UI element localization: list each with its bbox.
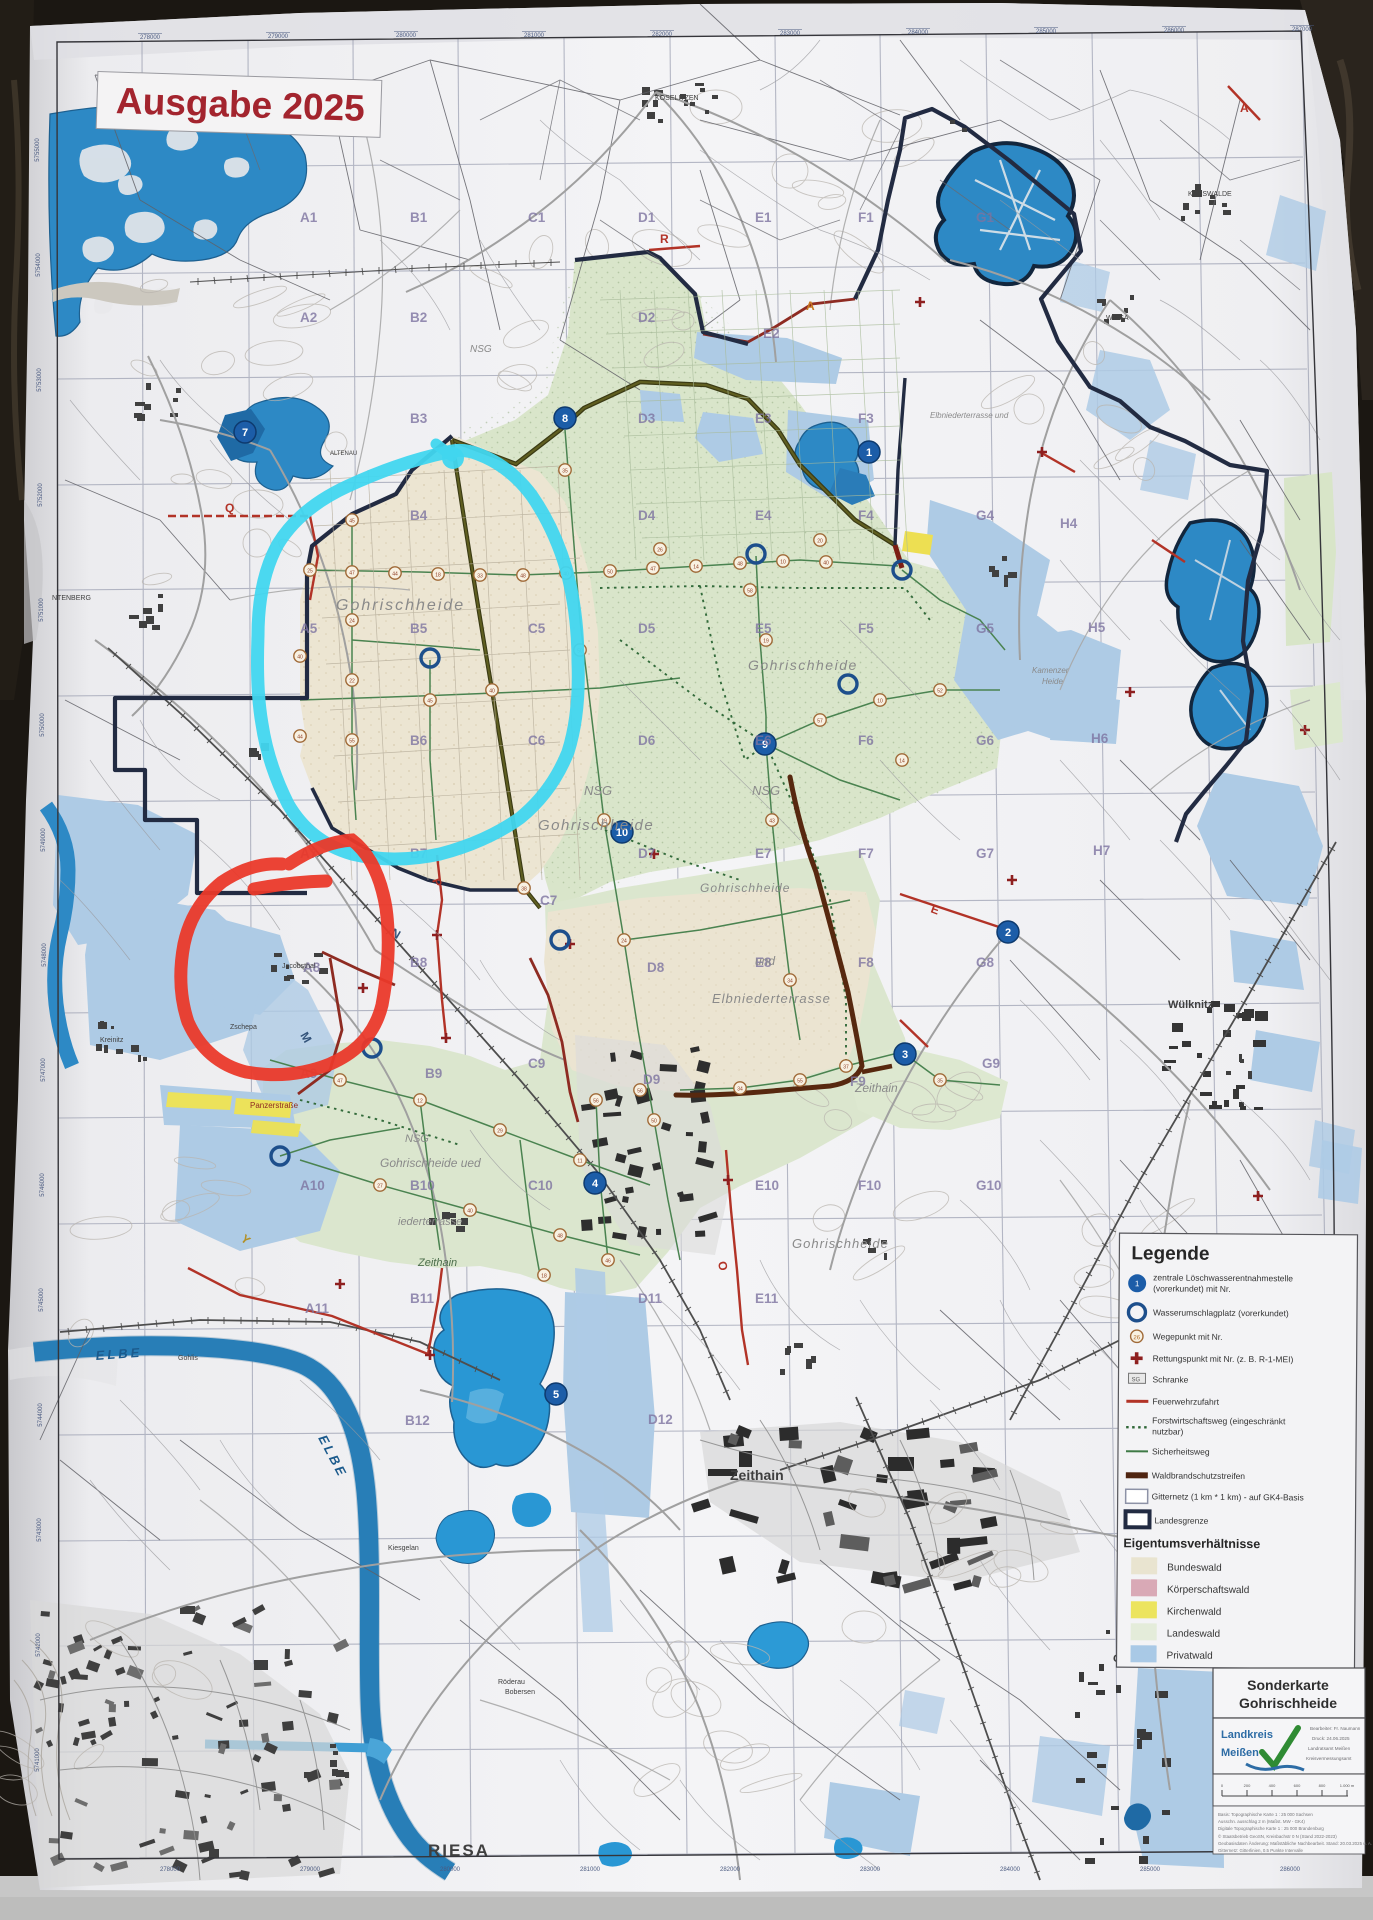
- svg-text:B2: B2: [410, 310, 427, 325]
- svg-text:58: 58: [747, 589, 753, 595]
- svg-text:1.000 m: 1.000 m: [1340, 1783, 1355, 1788]
- svg-text:B10: B10: [410, 1178, 435, 1193]
- svg-text:Kamenzer: Kamenzer: [1032, 666, 1069, 675]
- svg-text:E2: E2: [763, 326, 780, 341]
- svg-text:Zeithain: Zeithain: [417, 1257, 457, 1269]
- svg-text:47: 47: [349, 571, 355, 577]
- svg-text:14: 14: [899, 759, 905, 765]
- svg-text:D3: D3: [638, 411, 656, 426]
- svg-text:iederterrasse: iederterrasse: [398, 1216, 462, 1228]
- svg-text:281000: 281000: [524, 33, 545, 39]
- svg-text:5741000: 5741000: [35, 1748, 41, 1772]
- svg-text:281000: 281000: [580, 1867, 601, 1873]
- svg-text:Panzerstraße: Panzerstraße: [250, 1101, 299, 1110]
- svg-text:Bobersen: Bobersen: [505, 1689, 535, 1696]
- svg-text:8: 8: [562, 413, 568, 425]
- svg-text:56: 56: [593, 1099, 599, 1105]
- svg-text:NSG: NSG: [405, 1133, 429, 1145]
- svg-text:B4: B4: [410, 508, 428, 523]
- svg-text:G4: G4: [976, 508, 995, 523]
- svg-text:E1: E1: [755, 210, 772, 225]
- svg-text:285000: 285000: [1036, 29, 1057, 35]
- svg-text:NSG: NSG: [470, 344, 492, 355]
- svg-text:G10: G10: [976, 1178, 1002, 1193]
- svg-text:F4: F4: [858, 508, 874, 523]
- svg-text:278000: 278000: [140, 35, 161, 41]
- svg-text:50: 50: [607, 570, 613, 576]
- svg-text:5751000: 5751000: [39, 598, 45, 622]
- svg-text:G1: G1: [976, 210, 995, 225]
- svg-text:43: 43: [769, 819, 775, 825]
- svg-text:Gohrischheide: Gohrischheide: [1239, 1695, 1337, 1711]
- svg-text:Gohrischheide: Gohrischheide: [700, 881, 790, 895]
- svg-text:B5: B5: [410, 621, 428, 636]
- svg-text:4: 4: [592, 1178, 599, 1190]
- svg-text:Feuerwehrzufahrt: Feuerwehrzufahrt: [1152, 1396, 1219, 1406]
- svg-text:26: 26: [1133, 1335, 1140, 1341]
- svg-text:Landkreis: Landkreis: [1221, 1729, 1273, 1741]
- svg-text:12: 12: [417, 1099, 423, 1105]
- svg-text:283000: 283000: [860, 1867, 881, 1873]
- svg-text:G5: G5: [976, 621, 995, 636]
- svg-text:Gitternetz (1 km * 1 km) - auf: Gitternetz (1 km * 1 km) - auf GK4-Basis: [1152, 1491, 1304, 1502]
- svg-text:D8: D8: [647, 960, 665, 975]
- svg-text:Wasserumschlagplatz (vorerkund: Wasserumschlagplatz (vorerkundet): [1153, 1307, 1289, 1318]
- svg-text:Gohrischheide ued: Gohrischheide ued: [380, 1156, 481, 1170]
- svg-text:Ausschn. ausschlag 2 m (Maßst.: Ausschn. ausschlag 2 m (Maßst. MW - GK4): [1218, 1819, 1305, 1824]
- svg-text:D7: D7: [638, 846, 655, 861]
- svg-text:H7: H7: [1093, 843, 1110, 858]
- svg-text:19: 19: [763, 639, 769, 645]
- svg-text:KOSELITZEN: KOSELITZEN: [655, 95, 699, 102]
- svg-text:E3: E3: [755, 411, 772, 426]
- svg-text:A1: A1: [300, 210, 318, 225]
- svg-text:Bundeswald: Bundeswald: [1167, 1562, 1222, 1573]
- svg-text:10: 10: [780, 560, 786, 566]
- svg-text:Landeswald: Landeswald: [1167, 1628, 1220, 1639]
- svg-text:G6: G6: [976, 733, 995, 748]
- svg-text:Jacobsthal: Jacobsthal: [282, 963, 316, 970]
- svg-text:NSG: NSG: [584, 783, 612, 798]
- svg-text:D1: D1: [638, 210, 656, 225]
- svg-text:A: A: [1240, 101, 1249, 115]
- svg-text:18: 18: [435, 573, 441, 579]
- svg-text:B8: B8: [410, 955, 428, 970]
- svg-text:Forstwirtschaftsweg (eingeschr: Forstwirtschaftsweg (eingeschränkt: [1152, 1415, 1286, 1426]
- svg-text:H6: H6: [1091, 731, 1109, 746]
- svg-text:H4: H4: [1060, 516, 1078, 531]
- svg-text:1: 1: [866, 447, 872, 459]
- svg-text:5747000: 5747000: [41, 1058, 47, 1082]
- svg-text:38: 38: [521, 887, 527, 893]
- svg-text:34: 34: [737, 1087, 743, 1093]
- svg-text:C5: C5: [528, 621, 546, 636]
- svg-text:200: 200: [1244, 1783, 1251, 1788]
- svg-text:35: 35: [562, 469, 568, 475]
- svg-text:5749000: 5749000: [41, 828, 47, 852]
- svg-text:Körperschaftswald: Körperschaftswald: [1167, 1584, 1249, 1596]
- svg-text:26: 26: [657, 548, 663, 554]
- svg-text:Gitternetz: Gitterlinien, 0.5: Gitternetz: Gitterlinien, 0.5 Punkte Int…: [1218, 1848, 1303, 1853]
- svg-text:E4: E4: [755, 508, 772, 523]
- svg-text:B9: B9: [425, 1066, 442, 1081]
- svg-text:Q: Q: [225, 501, 234, 515]
- svg-text:55: 55: [797, 1079, 803, 1085]
- svg-text:40: 40: [467, 1209, 473, 1215]
- svg-text:nutzbar): nutzbar): [1152, 1426, 1183, 1436]
- svg-text:A5: A5: [300, 621, 318, 636]
- svg-text:Röderau: Röderau: [498, 1679, 525, 1686]
- svg-text:D12: D12: [648, 1412, 673, 1427]
- svg-text:400: 400: [1269, 1783, 1276, 1788]
- svg-text:46: 46: [605, 1259, 611, 1265]
- svg-text:5: 5: [553, 1389, 559, 1401]
- svg-text:27: 27: [377, 1184, 383, 1190]
- svg-text:Landesgrenze: Landesgrenze: [1154, 1515, 1208, 1525]
- svg-text:G8: G8: [976, 955, 995, 970]
- svg-text:44: 44: [392, 572, 398, 578]
- svg-text:A2: A2: [300, 310, 317, 325]
- svg-text:11: 11: [577, 1159, 582, 1165]
- svg-text:Bearbeiter: Fr. Naumann: Bearbeiter: Fr. Naumann: [1310, 1726, 1361, 1731]
- svg-text:G9: G9: [982, 1056, 1000, 1071]
- svg-text:1: 1: [1135, 1279, 1140, 1288]
- svg-text:280000: 280000: [440, 1867, 461, 1873]
- svg-text:14: 14: [693, 565, 699, 571]
- svg-text:C6: C6: [528, 733, 546, 748]
- svg-text:F7: F7: [858, 846, 874, 861]
- svg-text:Zschepa: Zschepa: [230, 1024, 257, 1031]
- svg-text:B12: B12: [405, 1413, 430, 1428]
- svg-text:40: 40: [297, 655, 303, 661]
- svg-text:Kiesgelan: Kiesgelan: [388, 1545, 419, 1552]
- svg-text:25: 25: [307, 569, 313, 575]
- svg-text:Legende: Legende: [1131, 1243, 1209, 1265]
- svg-text:Kreisvermessungsamt: Kreisvermessungsamt: [1306, 1756, 1352, 1761]
- svg-text:Zeithain: Zeithain: [854, 1081, 898, 1095]
- svg-text:Rettungspunkt mit Nr. (z. B. R: Rettungspunkt mit Nr. (z. B. R-1-MEI): [1153, 1353, 1294, 1364]
- svg-text:3: 3: [902, 1049, 908, 1061]
- svg-text:B1: B1: [410, 210, 428, 225]
- svg-text:Privatwald: Privatwald: [1167, 1650, 1213, 1661]
- svg-text:286000: 286000: [1164, 28, 1185, 34]
- svg-text:5746000: 5746000: [40, 1173, 46, 1197]
- svg-text:R: R: [660, 232, 669, 246]
- svg-text:Kreinitz: Kreinitz: [100, 1037, 124, 1044]
- svg-text:Kirchenwald: Kirchenwald: [1167, 1606, 1222, 1617]
- svg-text:5750000: 5750000: [40, 713, 46, 737]
- svg-text:SG: SG: [1131, 1377, 1140, 1383]
- svg-text:5748000: 5748000: [42, 943, 48, 967]
- svg-text:E5: E5: [755, 621, 772, 636]
- svg-text:40: 40: [823, 561, 829, 567]
- svg-text:279000: 279000: [268, 34, 289, 40]
- svg-text:40: 40: [489, 689, 495, 695]
- svg-text:282000: 282000: [720, 1867, 741, 1873]
- svg-text:44: 44: [297, 735, 303, 741]
- svg-text:10: 10: [877, 699, 883, 705]
- svg-text:Schranke: Schranke: [1152, 1374, 1188, 1384]
- svg-text:29: 29: [497, 1129, 503, 1135]
- svg-text:Gohlis: Gohlis: [178, 1355, 198, 1362]
- svg-text:F8: F8: [858, 955, 874, 970]
- svg-text:600: 600: [1294, 1783, 1301, 1788]
- svg-text:5752000: 5752000: [38, 483, 44, 507]
- svg-text:D6: D6: [638, 733, 656, 748]
- svg-text:Gohrischheide: Gohrischheide: [538, 817, 654, 834]
- svg-text:© Staatsbetrieb GeoSN, Kreisba: © Staatsbetrieb GeoSN, Kreisbachstr 0 N …: [1218, 1834, 1337, 1839]
- svg-text:5755000: 5755000: [35, 138, 41, 162]
- svg-text:G7: G7: [976, 846, 994, 861]
- svg-text:F10: F10: [858, 1178, 881, 1193]
- svg-text:48: 48: [557, 1234, 563, 1240]
- svg-text:E7: E7: [755, 846, 772, 861]
- svg-text:47: 47: [337, 1079, 343, 1085]
- svg-text:NSG: NSG: [752, 783, 780, 798]
- svg-text:Waldbrandschutzstreifen: Waldbrandschutzstreifen: [1152, 1470, 1246, 1481]
- svg-text:285000: 285000: [1140, 1867, 1161, 1873]
- svg-text:33: 33: [477, 574, 483, 580]
- svg-text:35: 35: [937, 1079, 943, 1085]
- svg-text:Geobasisdaten Änderung: Maßstä: Geobasisdaten Änderung: Maßstäbliche Nac…: [1218, 1841, 1372, 1846]
- svg-text:800: 800: [1319, 1783, 1326, 1788]
- svg-text:5753000: 5753000: [37, 368, 43, 392]
- svg-text:Eigentumsverhältnisse: Eigentumsverhältnisse: [1123, 1536, 1260, 1551]
- svg-text:34: 34: [787, 979, 793, 985]
- svg-text:E6: E6: [755, 733, 772, 748]
- svg-text:NTENBERG: NTENBERG: [52, 595, 91, 602]
- svg-text:Basis: Topographische Karte 1: Basis: Topographische Karte 1 : 25 000 S…: [1218, 1812, 1313, 1817]
- svg-text:Landratsamt Meißen: Landratsamt Meißen: [1308, 1746, 1351, 1751]
- svg-text:D4: D4: [638, 508, 656, 523]
- svg-text:RIESA: RIESA: [428, 1841, 490, 1860]
- svg-text:Druck: 24.06.2025: Druck: 24.06.2025: [1312, 1736, 1350, 1741]
- svg-text:55: 55: [349, 739, 355, 745]
- svg-text:A10: A10: [300, 1178, 325, 1193]
- svg-text:5742000: 5742000: [36, 1633, 42, 1657]
- svg-text:Elbniederterrasse: Elbniederterrasse: [712, 991, 831, 1006]
- svg-text:24: 24: [621, 939, 627, 945]
- svg-text:282000: 282000: [652, 32, 673, 38]
- svg-text:und: und: [755, 954, 775, 968]
- svg-text:A: A: [806, 299, 815, 313]
- svg-text:Gohrischheide: Gohrischheide: [336, 597, 465, 614]
- svg-text:Wegepunkt mit Nr.: Wegepunkt mit Nr.: [1153, 1331, 1223, 1341]
- svg-text:C9: C9: [528, 1056, 545, 1071]
- svg-text:Gohrischheide: Gohrischheide: [748, 657, 858, 673]
- svg-text:B6: B6: [410, 733, 428, 748]
- svg-text:5745000: 5745000: [39, 1288, 45, 1312]
- svg-text:Digitale Topographische Karte: Digitale Topographische Karte 1 : 25 000…: [1218, 1826, 1324, 1831]
- svg-text:50: 50: [651, 1119, 657, 1125]
- svg-text:E11: E11: [755, 1291, 779, 1306]
- svg-text:Wülknitz: Wülknitz: [1168, 999, 1214, 1011]
- svg-text:48: 48: [737, 562, 743, 568]
- svg-text:A11: A11: [305, 1301, 330, 1316]
- svg-text:E10: E10: [755, 1178, 779, 1193]
- svg-text:Elbniederterrasse und: Elbniederterrasse und: [930, 411, 1009, 420]
- svg-text:48: 48: [520, 574, 526, 580]
- svg-text:45: 45: [349, 519, 355, 525]
- svg-text:287000: 287000: [1292, 27, 1313, 33]
- svg-text:KAUSWALDE: KAUSWALDE: [1188, 191, 1232, 198]
- svg-text:20: 20: [817, 539, 823, 545]
- svg-text:Ausgabe 2025: Ausgabe 2025: [115, 80, 365, 129]
- svg-text:284000: 284000: [1000, 1867, 1021, 1873]
- svg-text:57: 57: [817, 719, 823, 725]
- svg-text:F1: F1: [858, 210, 874, 225]
- svg-text:37: 37: [843, 1065, 849, 1071]
- svg-text:Sicherheitsweg: Sicherheitsweg: [1152, 1446, 1210, 1456]
- svg-text:D11: D11: [638, 1291, 663, 1306]
- svg-text:5754000: 5754000: [36, 253, 42, 277]
- svg-text:D2: D2: [638, 310, 655, 325]
- svg-text:Sonderkarte: Sonderkarte: [1247, 1677, 1329, 1693]
- svg-text:56: 56: [637, 1089, 643, 1095]
- svg-text:zentrale Löschwasserentnahmest: zentrale Löschwasserentnahmestelle: [1153, 1272, 1293, 1283]
- svg-text:24: 24: [349, 619, 355, 625]
- svg-text:283000: 283000: [780, 31, 801, 37]
- svg-text:F5: F5: [858, 621, 874, 636]
- svg-text:F6: F6: [858, 733, 874, 748]
- svg-text:280000: 280000: [396, 33, 417, 39]
- svg-text:45: 45: [427, 699, 433, 705]
- svg-text:5744000: 5744000: [38, 1403, 44, 1427]
- svg-text:52: 52: [937, 689, 943, 695]
- svg-text:B3: B3: [410, 411, 428, 426]
- svg-text:22: 22: [349, 679, 355, 685]
- svg-text:H5: H5: [1088, 620, 1106, 635]
- svg-text:5743000: 5743000: [37, 1518, 43, 1542]
- svg-text:B11: B11: [410, 1291, 435, 1306]
- svg-text:WIESA: WIESA: [1106, 315, 1129, 322]
- svg-text:47: 47: [650, 567, 656, 573]
- svg-text:D5: D5: [638, 621, 656, 636]
- svg-text:278000: 278000: [160, 1867, 181, 1873]
- svg-text:Heide: Heide: [1042, 677, 1063, 686]
- svg-text:2: 2: [1005, 927, 1011, 939]
- svg-text:18: 18: [541, 1274, 547, 1280]
- svg-text:C7: C7: [540, 893, 557, 908]
- svg-text:286000: 286000: [1280, 1867, 1301, 1873]
- svg-text:284000: 284000: [908, 30, 929, 36]
- svg-text:F3: F3: [858, 411, 874, 426]
- svg-text:(vorerkundet) mit Nr.: (vorerkundet) mit Nr.: [1153, 1283, 1231, 1294]
- svg-text:D9: D9: [643, 1072, 660, 1087]
- svg-text:Meißen: Meißen: [1221, 1747, 1259, 1759]
- svg-text:7: 7: [242, 427, 248, 439]
- svg-text:Zeithain: Zeithain: [730, 1467, 784, 1483]
- svg-text:ALTENAU: ALTENAU: [330, 451, 357, 457]
- svg-text:C1: C1: [528, 210, 546, 225]
- svg-text:Gohrischheide: Gohrischheide: [792, 1236, 889, 1251]
- svg-text:279000: 279000: [300, 1867, 321, 1873]
- svg-text:C10: C10: [528, 1178, 553, 1193]
